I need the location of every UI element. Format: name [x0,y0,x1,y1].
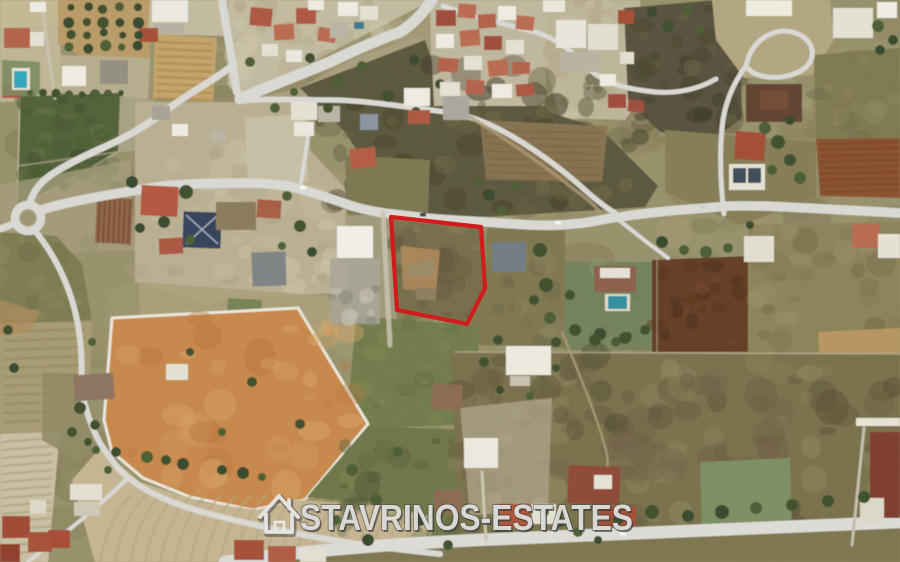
svg-text:STAVRINOS-ESTATES: STAVRINOS-ESTATES [300,497,633,538]
